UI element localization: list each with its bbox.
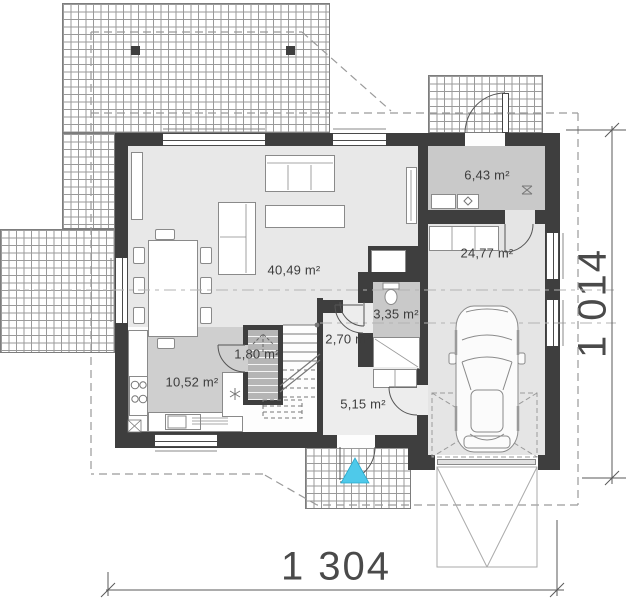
entry-closet [373, 369, 417, 388]
dining-chair [157, 338, 175, 349]
front-door-opening [337, 435, 375, 448]
terrace-top-paving [62, 3, 330, 133]
garage-window-east-1 [546, 233, 559, 279]
washer [431, 194, 456, 209]
under-stairs-floor [243, 405, 317, 432]
terrace-lower-left-paving [0, 229, 115, 353]
room-label-pantry: 1,80 m² [234, 347, 279, 362]
room-label-living: 40,49 m² [268, 263, 321, 278]
utility-garage-door-opening [505, 210, 535, 224]
living-window-west [115, 258, 128, 323]
coffee-table [265, 205, 345, 228]
dining-chair [155, 229, 175, 240]
pantry-floor [248, 330, 278, 400]
room-label-garage: 24,77 m² [461, 246, 514, 261]
dining-chair [133, 307, 145, 324]
sofa-vertical [218, 202, 256, 275]
living-window-north-2 [333, 133, 386, 146]
sofa-horizontal [265, 155, 335, 192]
utility-stoop-paving [428, 75, 543, 133]
entrance-stoop-paving [305, 447, 411, 509]
room-label-kitchen: 10,52 m² [166, 375, 219, 390]
sideboard [131, 152, 143, 220]
floor-plan-canvas: 40,49 m² 6,43 m² 24,77 m² 3,35 m² 2,70 m… [0, 0, 628, 600]
bathroom-door-opening [358, 303, 373, 333]
garage-door-panel [437, 459, 536, 465]
living-window-north-1 [163, 133, 265, 146]
room-label-hall: 2,70 m² [325, 332, 370, 347]
sink-unit [165, 414, 201, 430]
shower-tray [373, 337, 420, 369]
hall-top-wall [323, 300, 343, 313]
terrace-post-right [286, 46, 295, 55]
garage-window-east-2 [546, 300, 559, 346]
dining-chair [200, 247, 212, 264]
staircase-floor [283, 325, 317, 405]
dimension-depth-label: 1 014 [571, 248, 616, 358]
entry-garage-door-opening [417, 385, 428, 415]
terrace-left-strip-paving [62, 133, 115, 229]
terrace-post-left [131, 46, 140, 55]
utility-exterior-door-opening [465, 133, 505, 146]
tv-unit [406, 167, 417, 224]
stove [129, 376, 148, 416]
dining-chair [200, 307, 212, 324]
room-label-entry: 5,15 m² [340, 397, 385, 412]
room-label-bathroom: 3,35 m² [373, 307, 418, 322]
utility-door-leaf [502, 93, 509, 133]
dryer [457, 194, 479, 209]
room-label-utility: 6,43 m² [464, 168, 509, 183]
dimension-width-label: 1 304 [281, 545, 391, 590]
dining-table [148, 240, 198, 337]
kitchen-window-south [155, 434, 217, 447]
driveway-outline [437, 467, 537, 567]
dining-chair [133, 277, 145, 294]
dining-chair [133, 247, 145, 264]
dining-chair [200, 277, 212, 294]
